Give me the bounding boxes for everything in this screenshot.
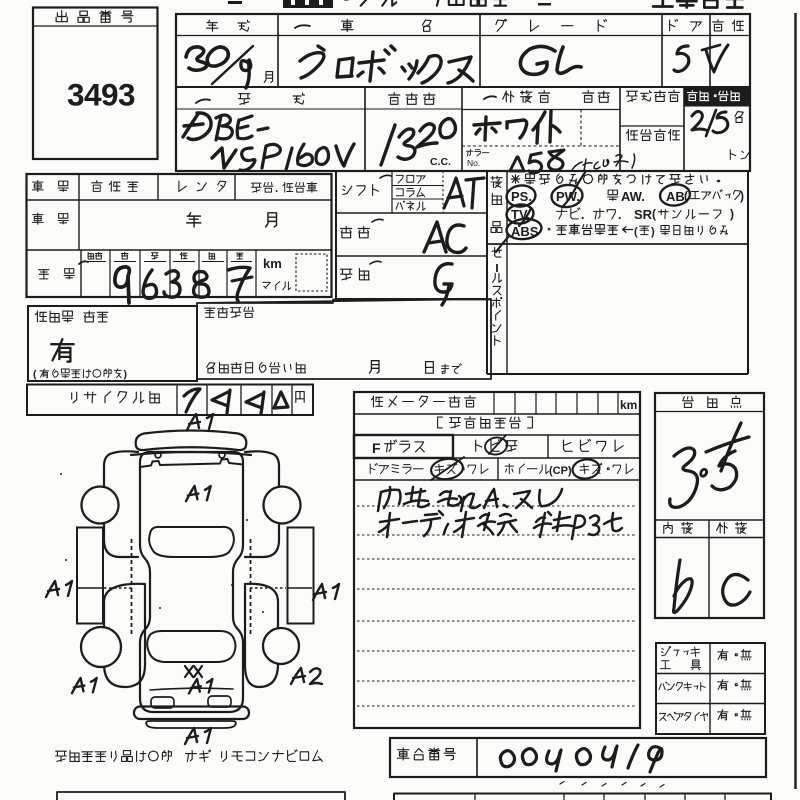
svg-text:(: ( — [652, 207, 656, 221]
svg-text:): ) — [124, 369, 128, 381]
svg-text:AW.: AW. — [621, 189, 645, 204]
svg-text:km: km — [263, 256, 282, 271]
svg-text:SR: SR — [634, 207, 653, 222]
svg-text:km: km — [620, 398, 637, 412]
svg-text:(: ( — [33, 369, 37, 381]
svg-text:): ) — [730, 207, 734, 221]
svg-text:3493: 3493 — [67, 77, 135, 113]
svg-text:): ) — [740, 189, 744, 203]
svg-text:No.: No. — [467, 158, 480, 168]
svg-text:C.C.: C.C. — [430, 156, 451, 168]
svg-text:F: F — [372, 440, 381, 456]
svg-text:.: . — [275, 183, 278, 195]
svg-text:(CP): (CP) — [549, 465, 572, 477]
svg-text:): ) — [651, 226, 655, 238]
svg-text:AB: AB — [666, 189, 685, 204]
svg-text:.: . — [581, 208, 584, 222]
svg-text:.: . — [618, 208, 621, 222]
svg-text:PS.: PS. — [511, 189, 532, 204]
svg-text:(: ( — [634, 226, 638, 238]
